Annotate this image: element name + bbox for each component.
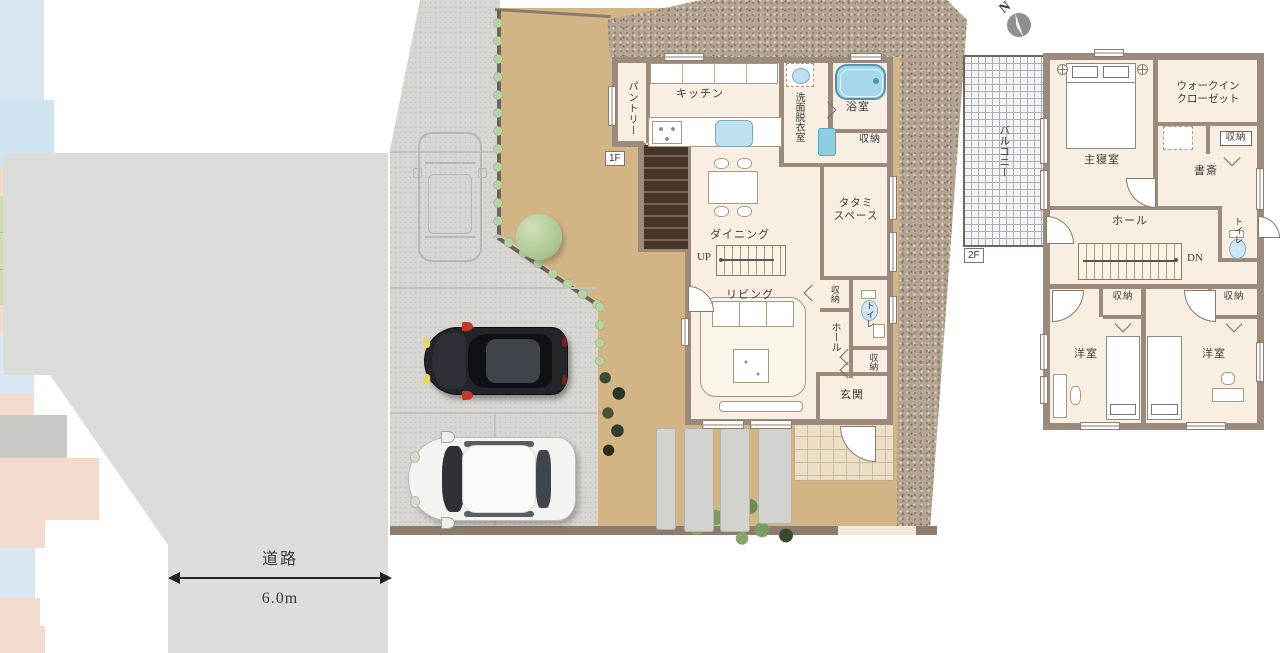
room-washroom	[0, 0, 44, 100]
washing-machine-icon	[818, 128, 836, 156]
black-car-mirror	[462, 322, 473, 331]
ghost-car-mirror	[478, 168, 487, 178]
wall	[1218, 206, 1222, 262]
dining-chair	[737, 158, 752, 169]
stairs-dn	[1078, 243, 1182, 280]
hedge-bushes-west	[490, 14, 506, 238]
label-wic: ウォークイン クローゼット	[1166, 80, 1250, 108]
window	[1094, 49, 1124, 57]
label-toilet-2f: トイレ	[1231, 212, 1245, 248]
window	[889, 296, 897, 324]
window	[1040, 118, 1048, 164]
room-toilet-2f	[0, 548, 35, 598]
window	[850, 53, 882, 61]
label-storage-right-2f: 収納	[1219, 291, 1249, 304]
wall	[816, 372, 820, 419]
black-car-taillight	[562, 337, 567, 347]
label-storage-mid-1f: 収納	[827, 281, 842, 307]
coffee-table	[733, 349, 769, 383]
floorplan-canvas: パントリー キッチン 洗面脱衣室 浴室 収納 タタミ スペース ダイニング UP…	[0, 0, 1280, 653]
stairs-1f-dark	[644, 145, 688, 249]
road-arrow-left-head	[168, 572, 180, 584]
road-width-label: 6.0m	[210, 588, 350, 610]
black-car-taillight	[562, 375, 567, 385]
white-car-windshield	[442, 446, 464, 512]
label-dn: DN	[1182, 252, 1208, 265]
stairs-up-line	[722, 259, 774, 261]
stove-icon	[652, 121, 682, 144]
stepping-stone	[656, 428, 676, 530]
compass-needle-icon	[1007, 13, 1031, 37]
dining-chair	[714, 158, 729, 169]
ghost-car-rear-line	[425, 236, 475, 238]
label-living: リビング	[720, 288, 780, 303]
garden-tree	[516, 214, 562, 260]
white-car-roof	[462, 445, 536, 513]
floor1-tag: 1F	[605, 151, 625, 166]
room-storage-entrance	[0, 393, 34, 415]
desk-left	[1053, 374, 1067, 418]
kitchen-sink-icon	[715, 120, 753, 147]
ghost-car-windshield	[425, 162, 475, 164]
label-pantry: パントリー	[621, 72, 641, 144]
white-car-headlight	[410, 496, 420, 508]
wall	[688, 145, 691, 249]
label-tatami-line2: スペース	[834, 211, 879, 224]
master-bed-pillow	[1103, 66, 1129, 78]
road-arrow-right-head	[380, 572, 392, 584]
label-study: 書斎	[1186, 165, 1226, 179]
window	[1040, 376, 1048, 404]
downlight-icon	[1137, 64, 1148, 75]
stepping-stone	[758, 428, 792, 524]
label-hall-1f: ホール	[826, 315, 842, 359]
label-storage-left-2f: 収納	[1108, 291, 1138, 304]
room-storage-right-2f	[0, 626, 45, 653]
room-wic	[0, 458, 99, 520]
black-car-hood	[432, 333, 466, 389]
white-car-rear-window	[536, 450, 551, 508]
label-storage-entrance: 収納	[866, 350, 880, 374]
label-storage-top-1f: 収納	[850, 133, 890, 146]
label-up: UP	[692, 251, 716, 264]
window	[1256, 342, 1264, 382]
site-gate-opening	[838, 526, 916, 535]
ghost-car-mirror	[413, 168, 422, 178]
label-bedroom-right: 洋室	[1192, 348, 1236, 362]
sofa-back-cushions	[712, 301, 794, 327]
stepping-stone	[684, 428, 714, 532]
ghost-car-outline	[418, 132, 482, 262]
window	[1040, 334, 1048, 370]
window	[1256, 168, 1264, 210]
stairs-dn-dot	[1174, 258, 1178, 262]
label-kitchen: キッチン	[664, 88, 736, 102]
window	[750, 420, 792, 429]
label-wic-line1: ウォークイン	[1177, 81, 1240, 94]
kitchen-cabinets	[650, 63, 778, 84]
stairs-dn-line	[1083, 260, 1175, 262]
white-car	[408, 437, 576, 521]
black-car-mirror	[462, 391, 473, 400]
label-bathroom: 浴室	[840, 101, 876, 115]
wall	[1050, 206, 1222, 210]
room-storage-top-2f	[0, 520, 45, 548]
parking-line	[390, 287, 597, 289]
wall	[828, 63, 833, 133]
floor2-tag: 2F	[964, 248, 984, 263]
white-car-headlight	[410, 451, 420, 463]
bed-right-pillow	[1151, 404, 1178, 415]
wall	[820, 167, 824, 280]
window	[1186, 422, 1226, 430]
black-car-roof	[486, 339, 540, 383]
wall	[1050, 284, 1257, 289]
black-car-headlight	[422, 373, 431, 385]
label-tatami-line1: タタミ	[839, 198, 874, 211]
bed-left-pillow	[1110, 404, 1136, 415]
label-wic-line2: クローゼット	[1177, 94, 1240, 107]
bathtub-drain	[873, 78, 879, 84]
wall	[820, 276, 888, 280]
label-hall-2f: ホール	[1106, 215, 1154, 229]
door-arc-toilet-2f	[1258, 216, 1280, 238]
label-genkan: 玄関	[830, 389, 874, 403]
dining-chair	[737, 206, 752, 217]
road-arrow-line	[176, 577, 384, 579]
window	[681, 318, 689, 346]
chair-left	[1070, 386, 1081, 405]
downlight-icon	[1057, 64, 1068, 75]
window	[702, 420, 744, 429]
dining-chair	[714, 206, 729, 217]
wall	[779, 63, 784, 166]
desk-right	[1212, 388, 1244, 402]
window	[608, 86, 616, 126]
label-tatami: タタミ スペース	[826, 196, 886, 226]
master-bed-pillow	[1072, 66, 1098, 78]
window	[1040, 170, 1048, 210]
dining-table	[708, 171, 758, 204]
label-bedroom-left: 洋室	[1064, 348, 1108, 362]
room-genkan	[0, 415, 67, 458]
tv-board	[719, 401, 803, 412]
window	[889, 176, 897, 220]
wall	[779, 163, 888, 167]
room-storage-left-2f	[0, 598, 40, 626]
compass: N	[993, 0, 1045, 48]
stairs-up	[716, 245, 786, 276]
label-storage-top-2f: 収納	[1220, 131, 1252, 146]
wall	[1141, 289, 1146, 423]
bathtub-icon	[835, 64, 886, 100]
master-bed-foldline	[1067, 82, 1135, 83]
label-master-bedroom: 主寝室	[1074, 154, 1130, 168]
wall	[1099, 289, 1103, 317]
label-washroom: 洗面脱衣室	[789, 82, 807, 152]
label-toilet-1f: トイレ	[862, 295, 877, 333]
black-car	[424, 325, 568, 397]
wall	[1206, 126, 1210, 154]
stepping-stone	[720, 428, 750, 532]
window	[664, 53, 704, 61]
chair-right	[1221, 372, 1235, 385]
white-car-mirror	[441, 431, 455, 443]
window	[1080, 422, 1120, 430]
wall	[820, 308, 851, 312]
ghost-car-roof	[428, 174, 472, 234]
label-dining: ダイニング	[708, 228, 772, 243]
white-car-mirror	[441, 517, 455, 529]
compass-circle	[1007, 13, 1031, 37]
road-label: 道路	[210, 549, 350, 571]
label-balcony: バルコニー	[994, 114, 1012, 188]
study-desk	[1163, 126, 1193, 150]
window	[889, 232, 897, 272]
